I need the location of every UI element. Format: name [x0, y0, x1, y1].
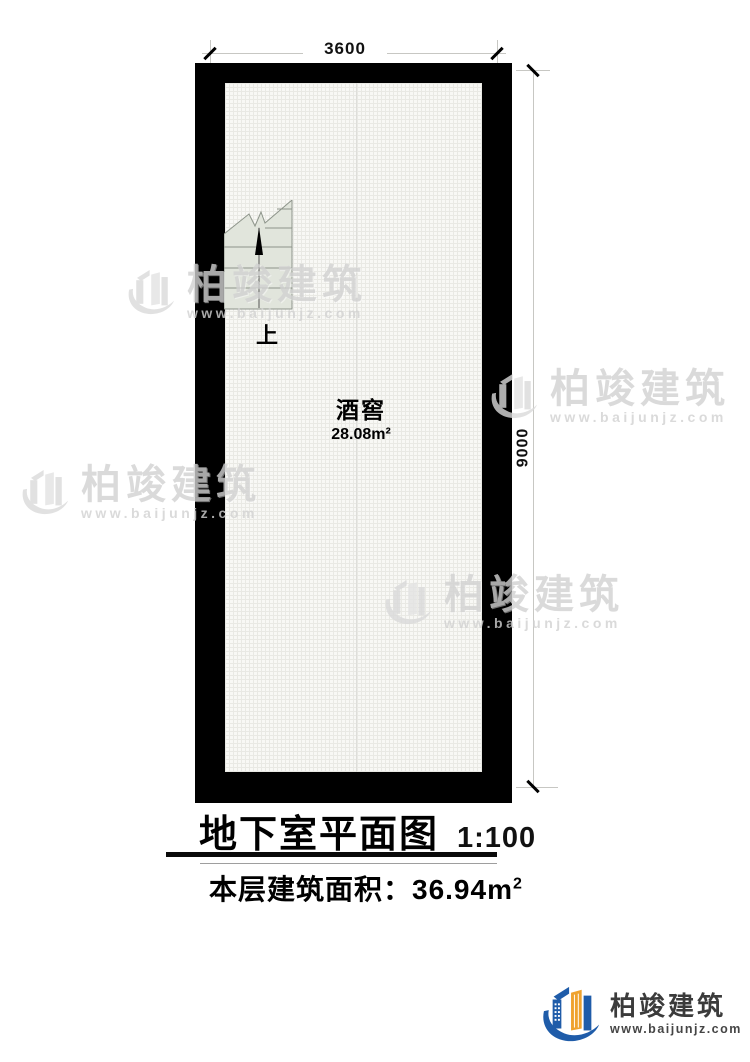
floor-area-text: 本层建筑面积：36.94m — [209, 874, 513, 905]
room-name: 酒窖 — [301, 391, 421, 425]
company-logo-icon — [540, 984, 604, 1044]
dimension-line-right — [533, 71, 534, 788]
watermark-logo-icon — [20, 462, 72, 522]
company-url: www.baijunjz.com — [610, 1022, 742, 1036]
company-name: 柏竣建筑 — [610, 992, 742, 1021]
drawing-scale: 1:100 — [457, 822, 536, 855]
floorplan-page: 上 酒窖 28.08m² 3600 9000 柏竣建筑 www.baijunjz… — [0, 0, 750, 1062]
title-block: 地下室平面图 1:100 — [199, 803, 536, 858]
room-area: 28.08m² — [301, 426, 421, 444]
stairs-icon — [224, 200, 295, 310]
stairs-up-label: 上 — [247, 318, 287, 350]
watermark-brand: 柏竣建筑 — [550, 368, 730, 410]
floor-area-superscript: 2 — [513, 876, 523, 893]
watermark: 柏竣建筑 www.baijunjz.com — [489, 366, 730, 426]
page-title: 地下室平面图 — [199, 803, 439, 858]
company-logo: 柏竣建筑 www.baijunjz.com — [540, 984, 742, 1044]
floor-area-caption: 本层建筑面积：36.94m2 — [209, 868, 523, 908]
watermark-logo-icon — [126, 262, 178, 322]
room-label: 酒窖 28.08m² — [301, 391, 421, 444]
dimension-height-label: 9000 — [515, 428, 532, 468]
title-underline-thin — [200, 863, 497, 864]
dimension-width-label: 3600 — [303, 39, 387, 59]
watermark-url: www.baijunjz.com — [550, 409, 730, 425]
